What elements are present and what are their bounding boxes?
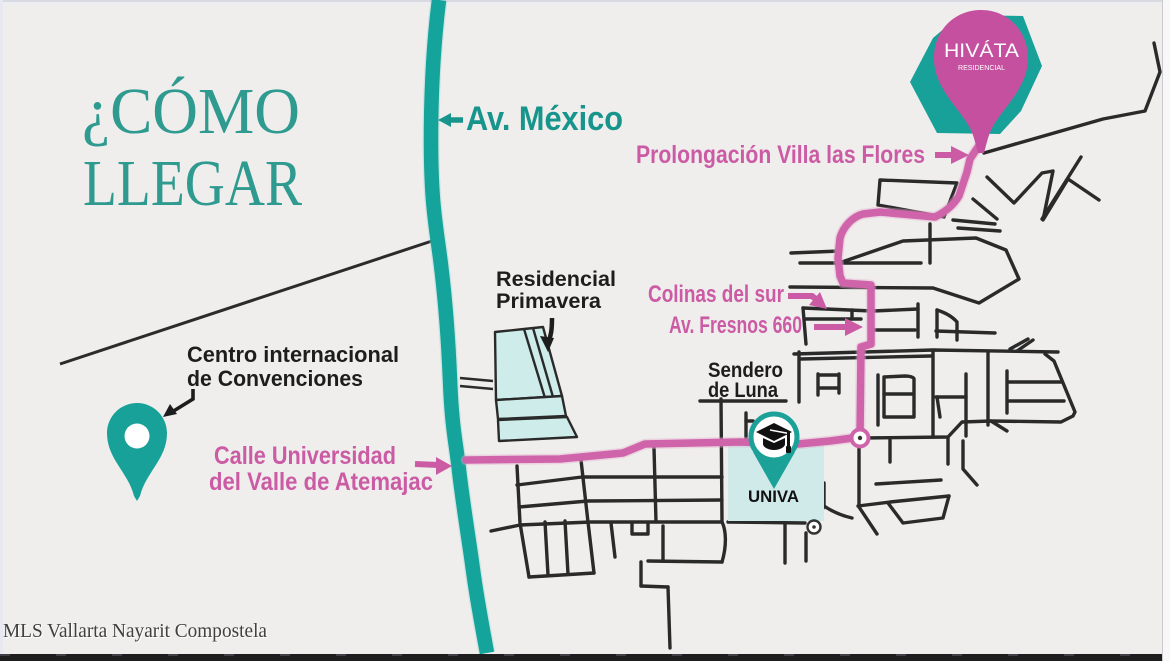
svg-text:Av. México: Av. México xyxy=(466,100,623,138)
svg-text:Colinas del sur: Colinas del sur xyxy=(648,281,784,308)
svg-text:RESIDENCIAL: RESIDENCIAL xyxy=(958,65,1005,72)
svg-text:¿CÓMO: ¿CÓMO xyxy=(82,75,300,148)
svg-text:del Valle de Atemajac: del Valle de Atemajac xyxy=(209,468,433,496)
svg-text:Residencial: Residencial xyxy=(496,268,616,291)
svg-text:Calle Universidad: Calle Universidad xyxy=(214,442,396,470)
svg-text:Centro internacional: Centro internacional xyxy=(187,342,399,367)
svg-text:HIVÁTA: HIVÁTA xyxy=(944,41,1019,62)
svg-text:de Luna: de Luna xyxy=(708,379,778,402)
svg-text:UNIVA: UNIVA xyxy=(748,487,799,506)
svg-text:Prolongación Villa las Flores: Prolongación Villa las Flores xyxy=(636,141,925,169)
svg-text:LLEGAR: LLEGAR xyxy=(83,147,302,220)
svg-text:Primavera: Primavera xyxy=(496,290,601,313)
svg-text:de Convenciones: de Convenciones xyxy=(187,366,363,391)
svg-text:MLS Vallarta Nayarit Compostel: MLS Vallarta Nayarit Compostela xyxy=(3,620,267,642)
svg-text:Av. Fresnos 660: Av. Fresnos 660 xyxy=(669,312,802,339)
